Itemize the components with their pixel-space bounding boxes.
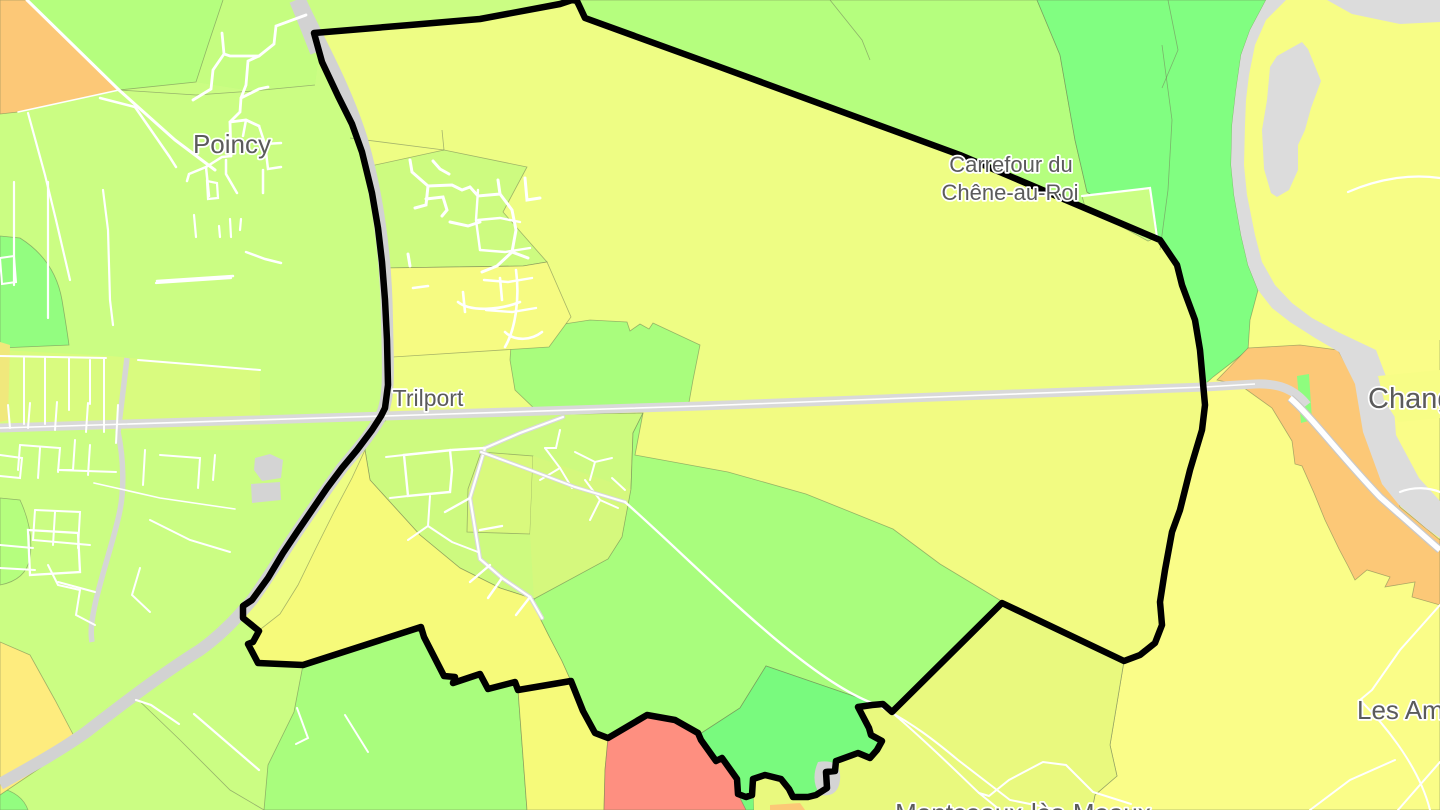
- svg-text:Les Ambles: Les Ambles: [1357, 695, 1440, 725]
- svg-text:Changis: Changis: [1368, 383, 1440, 415]
- svg-text:Poincy: Poincy: [193, 129, 271, 159]
- svg-text:Carrefour du: Carrefour du: [949, 152, 1073, 177]
- svg-text:Trilport: Trilport: [393, 385, 464, 411]
- svg-text:Chêne-au-Roi: Chêne-au-Roi: [942, 180, 1079, 205]
- svg-text:Montceaux-lès-Meaux: Montceaux-lès-Meaux: [895, 798, 1151, 810]
